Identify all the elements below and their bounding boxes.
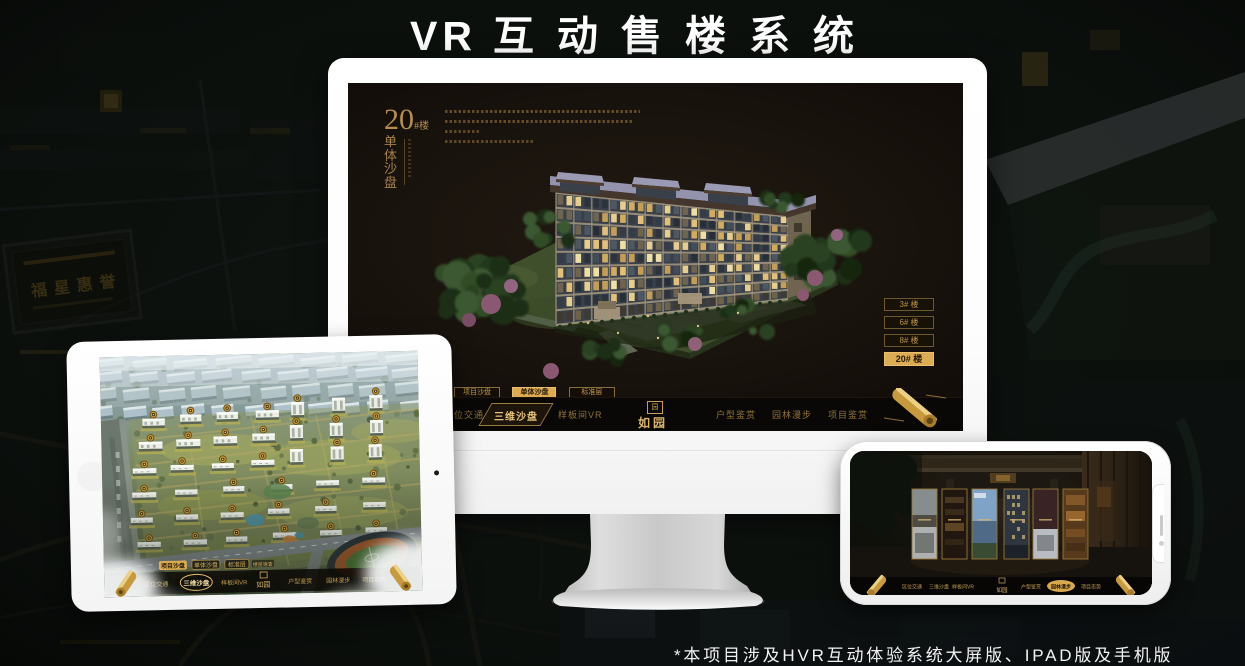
svg-text:如园: 如园 [996, 586, 1008, 594]
svg-text:样板间VR: 样板间VR [952, 584, 974, 591]
svg-text:如园: 如园 [256, 580, 270, 589]
svg-text:项目态势: 项目态势 [1081, 584, 1101, 591]
svg-text:户型鉴赏: 户型鉴赏 [1021, 584, 1041, 591]
svg-text:三维沙盘: 三维沙盘 [929, 584, 949, 591]
svg-text:园林漫步: 园林漫步 [1051, 584, 1071, 591]
svg-text:楼座速查: 楼座速查 [253, 561, 273, 568]
svg-text:区位交通: 区位交通 [902, 584, 922, 591]
